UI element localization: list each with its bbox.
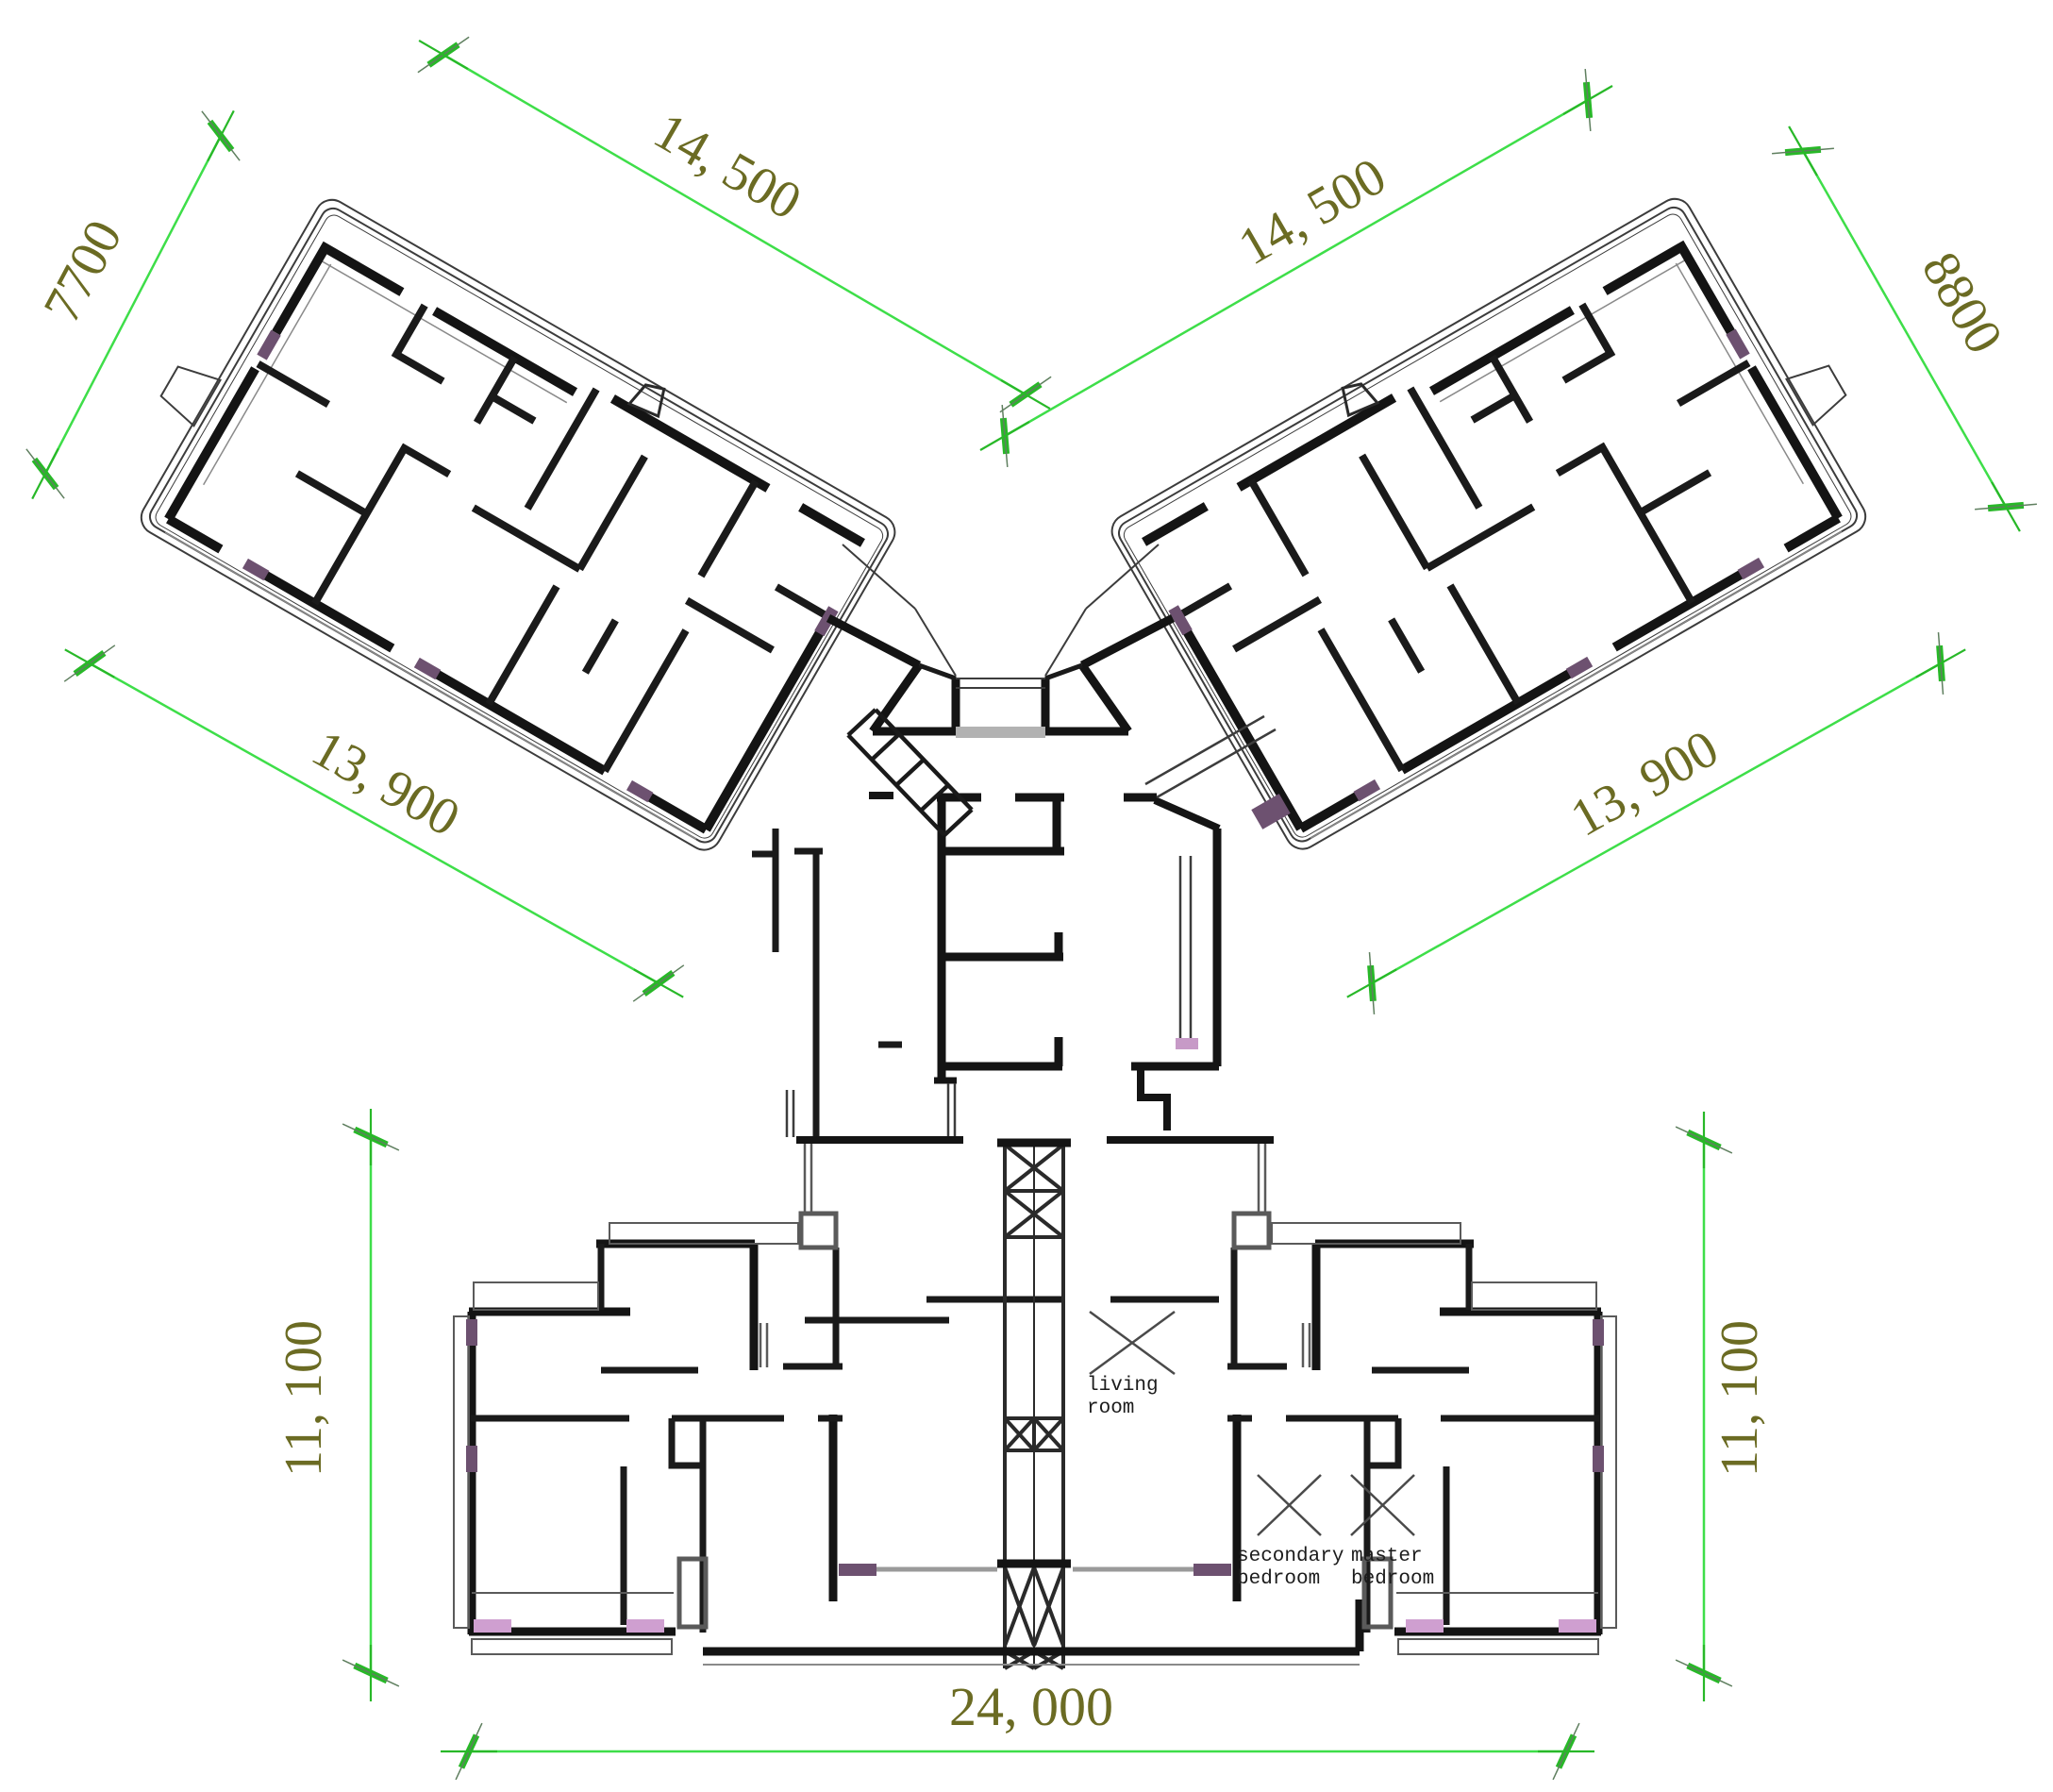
svg-text:master: master xyxy=(1351,1546,1423,1567)
svg-text:24, 000: 24, 000 xyxy=(949,1676,1113,1737)
svg-text:secondary: secondary xyxy=(1237,1546,1344,1567)
svg-text:living: living xyxy=(1087,1375,1159,1397)
svg-text:11, 100: 11, 100 xyxy=(1711,1320,1769,1477)
svg-text:bedroom: bedroom xyxy=(1351,1568,1434,1590)
svg-text:room: room xyxy=(1087,1398,1134,1419)
svg-text:11, 100: 11, 100 xyxy=(275,1320,333,1477)
svg-text:bedroom: bedroom xyxy=(1237,1568,1320,1590)
